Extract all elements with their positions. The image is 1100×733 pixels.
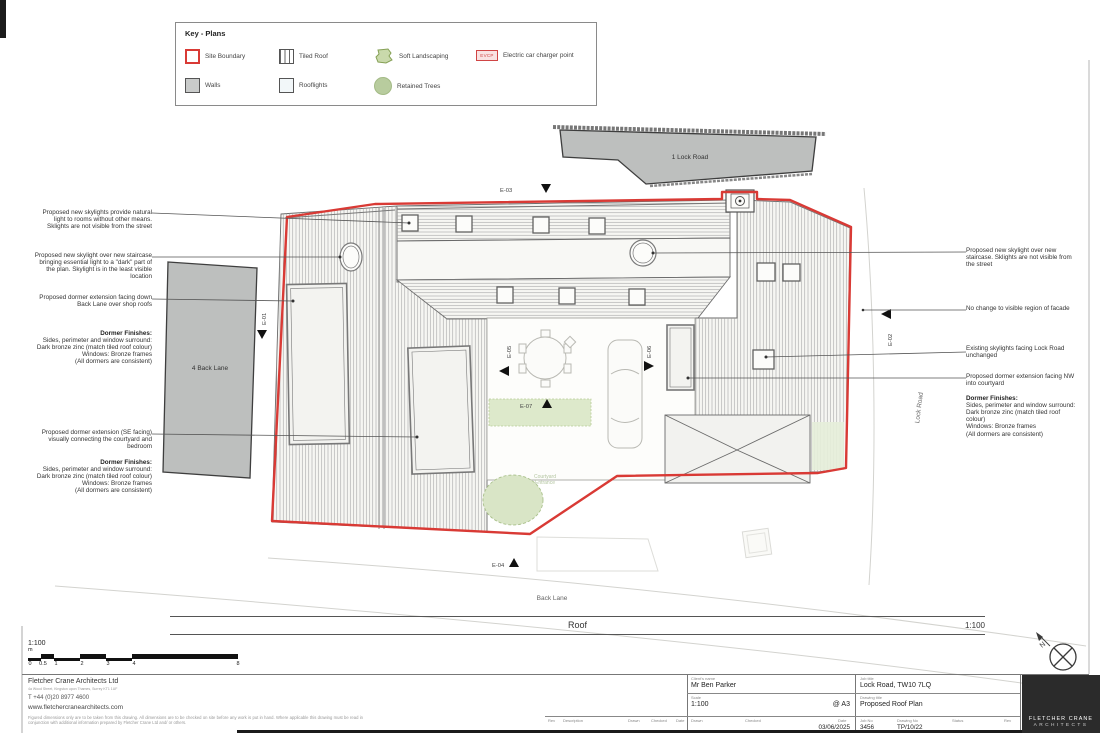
paper-size: @ A3 [780,701,850,708]
chimney [726,190,754,212]
dormer-nw [667,325,694,390]
tiled-roof-swatch [279,49,294,64]
status-label: Status [952,718,963,723]
annotation-dormer-se: Proposed dormer extension (SE facing) vi… [34,429,152,450]
soft-landscaping-strip [489,399,591,426]
firm-address: 4a Wood Street, Kingston upon Thames, Su… [28,687,363,691]
car [608,340,642,448]
building-label: 1 Lock Road [672,154,709,161]
scan-edge-mark [0,0,6,38]
legend-item-rooflights: Rooflights [279,78,327,93]
titlebar-rule-top [170,616,985,617]
annotation-dormer-nw: Proposed dormer extension facing NW into… [966,373,1078,387]
scale-value: 1:100 [691,701,709,708]
legend-title: Key - Plans [185,29,225,38]
firm-name: Fletcher Crane Architects Ltd [28,678,363,685]
ev-charger-icon: EVCP [476,50,498,61]
legend-label: Electric car charger point [503,52,574,59]
building-label: 4 Back Lane [192,365,229,372]
marker-e04: E-04 [492,563,505,569]
drawing-title: Proposed Roof Plan [860,701,923,708]
annotation-existing-skylights: Existing skylights facing Lock Road unch… [966,345,1078,359]
scale-bar-graphic [28,654,238,661]
firm-website[interactable]: www.fletchercranearchitects.com [28,704,363,711]
legend-label: Soft Landscaping [399,53,448,60]
client-label: Client's name [691,676,715,681]
marker-e02: E-02 [888,334,894,346]
building-4-back-lane: 4 Back Lane [163,262,257,478]
description-header: Description [563,718,583,723]
street-label-back-lane: Back Lane [537,595,568,602]
rev-header: Rev [548,718,555,723]
rev-label: Rev [1004,718,1011,723]
scale-label: Scale [691,695,701,700]
marker-e01: E-01 [262,313,268,325]
legend-item-site-boundary: Site Boundary [185,49,245,64]
annotation-no-change-facade: No change to visible region of facade [966,305,1078,312]
titleblock-divider-2 [855,674,856,733]
annotation-skylights: Proposed new skylights provide natural l… [34,209,152,230]
scale-ratio: 1:100 [28,640,244,647]
drawn-label: Drawn [691,718,703,723]
legend-label: Rooflights [299,82,327,89]
job-drawing-rule [855,693,1020,694]
drawing-no-label: Drawing No [897,718,918,723]
job-no-label: Job No [860,718,873,723]
titleblock-divider-1 [687,674,688,733]
client-scale-rule [687,693,855,694]
legend-label: Site Boundary [205,53,245,60]
skylight-oval [340,243,362,271]
job-title: Lock Road, TW10 7LQ [860,682,931,689]
north-compass: N [1036,632,1076,670]
drawing-sheet: 1 Lock Road 4 Back Lane [0,0,1100,733]
firm-info: Fletcher Crane Architects Ltd 4a Wood St… [28,678,363,725]
street-label-lock-road: Lock Road [914,392,925,424]
annotation-dormer-finishes-1: Dormer Finishes: Sides, perimeter and wi… [34,330,152,366]
titleblock-divider-3 [1020,674,1021,733]
annotation-skylight-staircase: Proposed new skylight over new staircase… [34,252,152,280]
architect-logo: FLETCHER CRANE ARCHITECTS [1022,675,1100,733]
checked-label: Checked [745,718,761,723]
scale-drawn-rule [687,716,855,717]
legend-item-ev-charger: EVCP Electric car charger point [476,50,574,61]
garden-patch [812,422,844,470]
legend-label: Tiled Roof [299,53,328,60]
soft-landscaping-swatch [374,47,394,65]
annotation-skylight-new-staircase: Proposed new skylight over new staircase… [966,247,1078,268]
date-header: Date [676,718,684,723]
scale-unit: m [28,647,244,653]
marker-e03: E-03 [500,188,512,194]
legend-label: Retained Trees [397,83,440,90]
walls-swatch [185,78,200,93]
titleblock-top-rule [22,674,1089,675]
scale-bar-ticks: 0 0.5 1 2 3 4 8 [28,661,244,668]
scale-bar: 1:100 m 0 0.5 1 2 3 4 8 [28,640,244,668]
date-label: Date [838,718,846,723]
checked-header: Checked [651,718,667,723]
drawn-header: Drawn [628,718,640,723]
legend-item-soft-landscaping: Soft Landscaping [374,47,448,65]
logo-line-2: ARCHITECTS [1034,723,1089,728]
annotation-dormer-finishes-3: Dormer Finishes: Sides, perimeter and wi… [966,395,1078,438]
drawing-scale: 1:100 [885,621,985,630]
legend-item-tiled-roof: Tiled Roof [279,49,328,64]
dormer-se [408,346,474,474]
courtyard-entrance-label: CourtyardEntrance [534,474,556,486]
retained-trees-swatch [374,77,392,95]
job-title-label: Job title [860,676,874,681]
drawing-no-rule [855,716,1020,717]
legend-item-retained-trees: Retained Trees [374,77,440,95]
legend-item-walls: Walls [185,78,220,93]
firm-disclaimer: Figured dimensions only are to be taken … [28,715,363,726]
revision-table-rule [545,716,687,717]
client-name: Mr Ben Parker [691,682,736,689]
building-1-lock-road: 1 Lock Road [553,127,826,186]
legend-box: Key - Plans Site Boundary Tiled Roof Sof… [175,22,597,106]
site-boundary-swatch [185,49,200,64]
annotation-dormer-back-lane: Proposed dormer extension facing down Ba… [34,294,152,308]
marker-e05: E-05 [507,346,513,358]
legend-label: Walls [205,82,220,89]
marker-e07: E-07 [520,404,532,410]
rooflights-swatch [279,78,294,93]
marker-e06: E-06 [647,346,653,358]
firm-phone: T +44 (0)20 8977 4600 [28,695,363,701]
logo-line-1: FLETCHER CRANE [1029,716,1093,722]
dormer-back-lane [287,283,350,444]
annotation-dormer-finishes-2: Dormer Finishes: Sides, perimeter and wi… [34,459,152,495]
drawing-title-label: Drawing title [860,695,882,700]
drawing-name: Roof [170,620,985,630]
titlebar-rule-bottom [170,634,985,635]
